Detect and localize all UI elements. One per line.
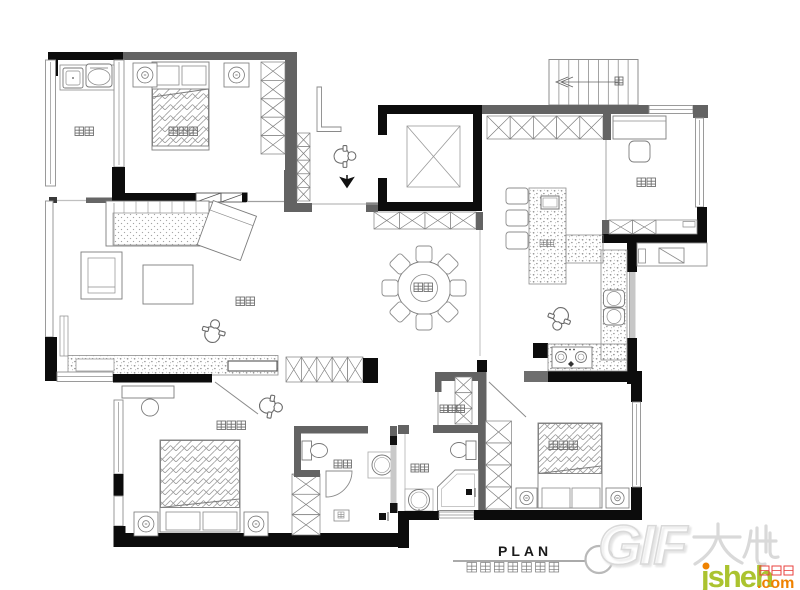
svg-text:.com: .com — [757, 575, 794, 590]
svg-text:GIF: GIF — [598, 513, 689, 576]
svg-text:PLAN: PLAN — [498, 543, 552, 559]
